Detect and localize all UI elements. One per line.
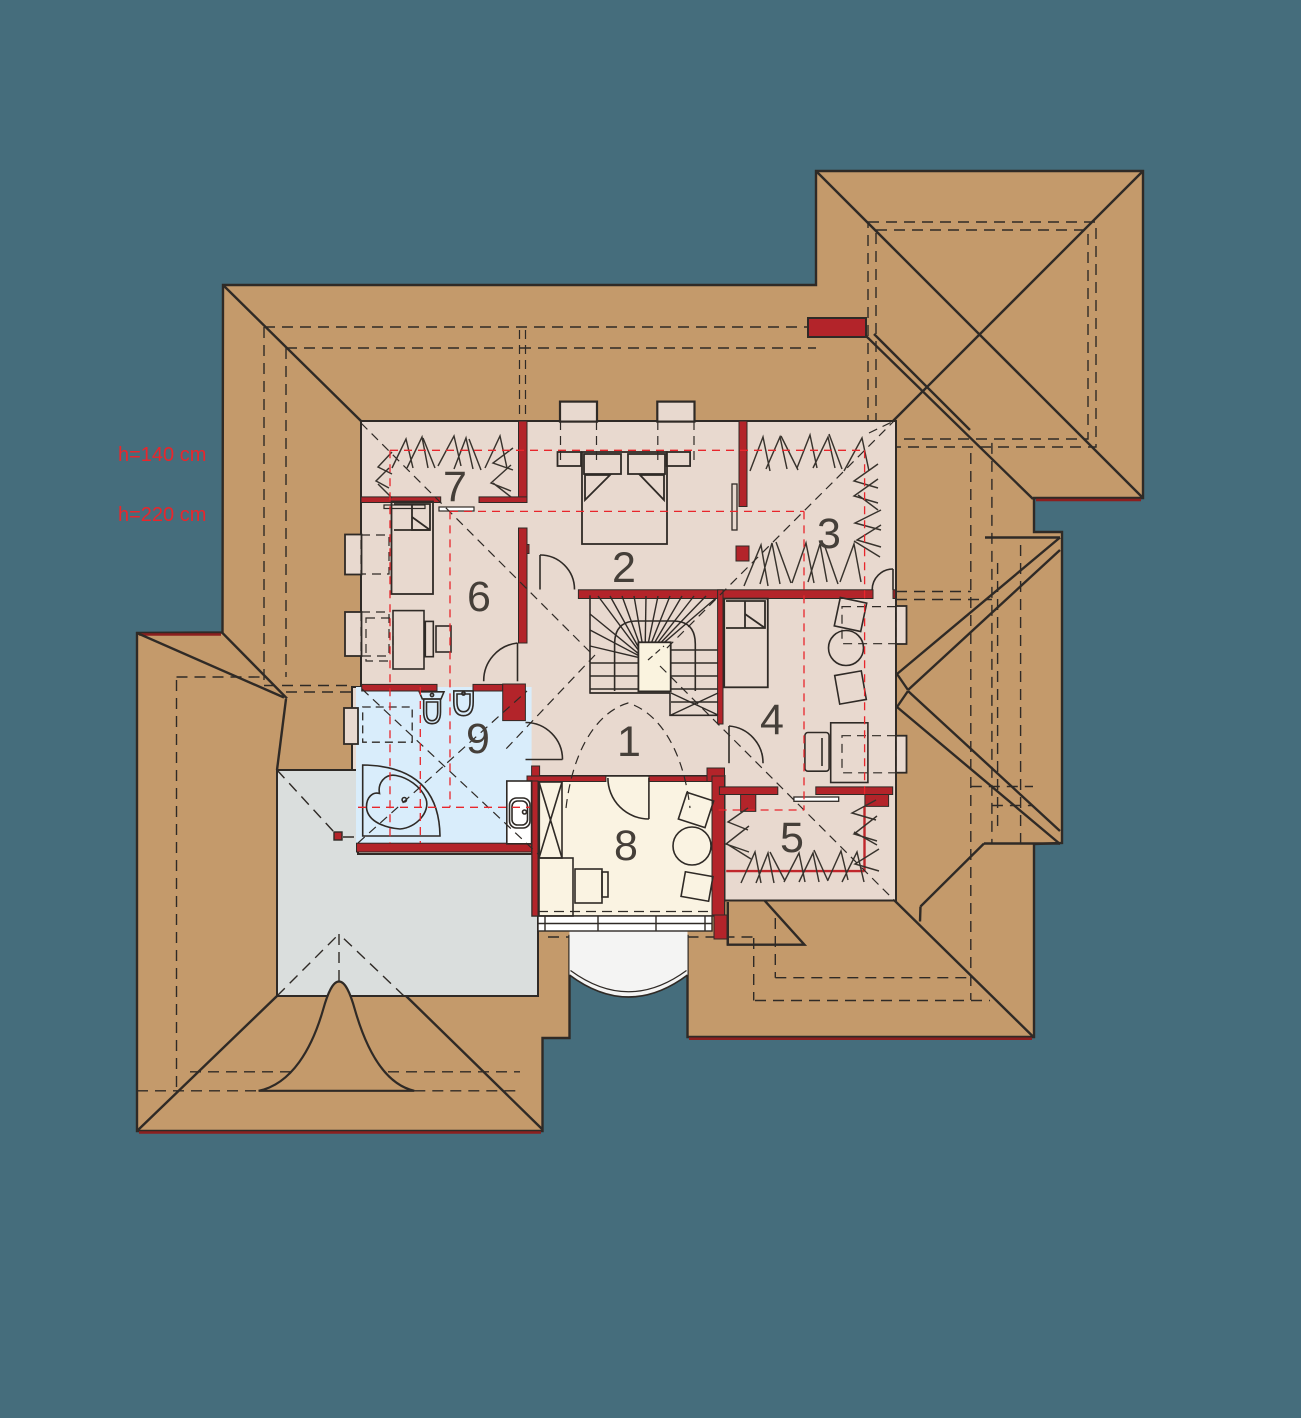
svg-text:3: 3 (817, 510, 841, 558)
svg-text:6: 6 (467, 573, 491, 621)
svg-text:8: 8 (614, 822, 638, 870)
svg-text:h=220 cm: h=220 cm (118, 504, 206, 526)
svg-text:h=140 cm: h=140 cm (118, 444, 206, 466)
svg-text:5: 5 (780, 814, 804, 862)
svg-text:2: 2 (612, 544, 636, 592)
svg-text:1: 1 (617, 718, 641, 766)
svg-text:7: 7 (443, 463, 467, 511)
svg-text:9: 9 (466, 715, 490, 763)
svg-text:4: 4 (760, 696, 784, 744)
